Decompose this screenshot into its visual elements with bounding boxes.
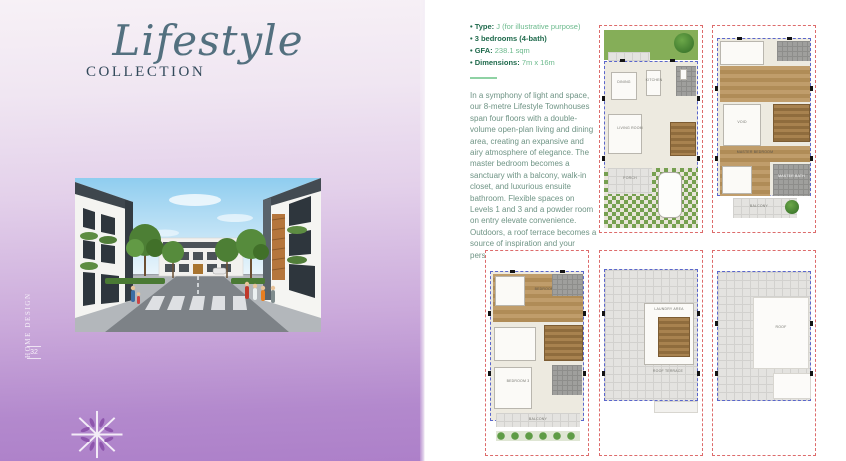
wall-tick — [810, 371, 813, 376]
wall-tick — [583, 371, 586, 376]
wall-tick — [602, 96, 605, 101]
townhouse-photo-art — [75, 178, 321, 332]
floorplan-level-3: BEDROOM 2 BEDROOM 3 BALCONY — [485, 250, 589, 456]
wall-tick — [810, 156, 813, 161]
staircase — [773, 104, 810, 142]
bath-room-2 — [552, 365, 582, 395]
page-number-value: 32 — [30, 349, 38, 356]
walkin-closet — [720, 41, 764, 65]
master-bed — [722, 166, 752, 194]
dining-table — [611, 72, 637, 100]
spec-label: Type: — [475, 22, 494, 31]
spec-label: 3 bedrooms (4-bath) — [475, 34, 547, 43]
page-number: 32 — [26, 344, 42, 361]
car-icon — [658, 172, 682, 218]
roof-label: ROOF — [761, 325, 801, 329]
wall-tick — [810, 86, 813, 91]
page-gutter — [420, 0, 425, 461]
wall-tick — [560, 270, 565, 273]
wall-tick — [697, 311, 700, 316]
wall-tick — [697, 96, 700, 101]
wall-tick — [602, 311, 605, 316]
bath-room — [552, 274, 583, 296]
master-bedroom-label: MASTER BEDROOM — [725, 150, 785, 154]
porch-label: PORCH — [612, 176, 648, 180]
star-ornament-icon — [68, 408, 126, 461]
roof-notch — [773, 373, 811, 399]
page-number-rule-bottom — [27, 358, 41, 359]
toilet-fixture — [680, 69, 687, 80]
brochure-page: Lifestyle COLLECTION — [0, 0, 846, 461]
spec-item-bedrooms: 3 bedrooms (4-bath) — [470, 34, 600, 43]
wall-tick — [715, 86, 718, 91]
spec-item-type: Type: J (for illustrative purpose) — [470, 22, 600, 31]
wall-tick — [697, 156, 700, 161]
left-panel: Lifestyle COLLECTION — [0, 0, 424, 461]
balcony-label: BALCONY — [516, 417, 560, 421]
laundry-label: LAUNDRY AREA — [644, 307, 694, 311]
void-label: VOID — [723, 120, 761, 124]
roof-terrace-label: ROOF TERRACE — [640, 369, 696, 373]
spec-value: J (for illustrative purpose) — [496, 22, 580, 31]
staircase — [658, 317, 690, 357]
wall-tick — [602, 371, 605, 376]
planter-icon — [785, 200, 799, 214]
deck-strip — [608, 52, 650, 61]
bath-room — [777, 41, 810, 61]
spec-label: Dimensions: — [475, 58, 520, 67]
roof-void — [753, 297, 809, 369]
page-number-rule-top — [27, 346, 41, 347]
wall-tick — [715, 371, 718, 376]
floorplan-roof-terrace: LAUNDRY AREA ROOF TERRACE — [599, 250, 703, 456]
upper-hall-floor — [720, 66, 810, 102]
floorplan-roof: ROOF — [712, 250, 816, 456]
living-label: LIVING ROOM — [608, 126, 652, 130]
wall-tick — [488, 371, 491, 376]
bedroom3-label: BEDROOM 3 — [496, 379, 540, 383]
spec-value: 238.1 sqm — [495, 46, 530, 55]
wall-tick — [715, 321, 718, 326]
staircase — [670, 122, 696, 156]
spec-list: Type: J (for illustrative purpose) 3 bed… — [470, 22, 600, 70]
collection-title-caps: COLLECTION — [86, 64, 236, 81]
wall-tick — [737, 37, 742, 40]
dining-label: DINING — [609, 80, 639, 84]
staircase — [544, 325, 583, 361]
bed-3 — [494, 367, 532, 409]
wall-tick — [602, 156, 605, 161]
roof-step — [654, 401, 698, 413]
wall-tick — [583, 311, 586, 316]
bed-2 — [495, 276, 525, 306]
planter-row — [496, 431, 580, 441]
wall-tick — [810, 321, 813, 326]
spec-label: GFA: — [475, 46, 493, 55]
spec-item-gfa: GFA: 238.1 sqm — [470, 46, 600, 55]
tree-icon — [674, 33, 694, 53]
kitchen-label: KITCHEN — [640, 78, 668, 82]
floorplan-level-2: VOID MASTER BEDROOM MASTER BATH BALCONY — [712, 25, 816, 233]
collection-title-script: Lifestyle — [78, 16, 338, 65]
spec-value: 7m x 16m — [522, 58, 555, 67]
wall-tick — [715, 156, 718, 161]
hall-closet — [494, 327, 536, 361]
wall-tick — [620, 59, 625, 62]
kitchen-island — [646, 70, 661, 96]
master-bath-label: MASTER BATH — [773, 174, 810, 178]
description-paragraph: In a symphony of light and space, our 8-… — [470, 90, 598, 261]
living-furniture — [608, 114, 642, 154]
spec-item-dimensions: Dimensions: 7m x 16m — [470, 58, 600, 67]
wall-tick — [488, 311, 491, 316]
void-area — [723, 104, 761, 146]
wall-tick — [697, 371, 700, 376]
wall-tick — [670, 59, 675, 62]
balcony-label: BALCONY — [739, 204, 779, 208]
master-bath — [773, 164, 810, 196]
porch-area — [608, 168, 652, 194]
wall-tick — [787, 37, 792, 40]
green-divider — [470, 77, 497, 79]
townhouse-photo — [75, 178, 321, 332]
wall-tick — [510, 270, 515, 273]
floorplan-level-1: DINING KITCHEN LIVING ROOM PORCH — [599, 25, 703, 233]
